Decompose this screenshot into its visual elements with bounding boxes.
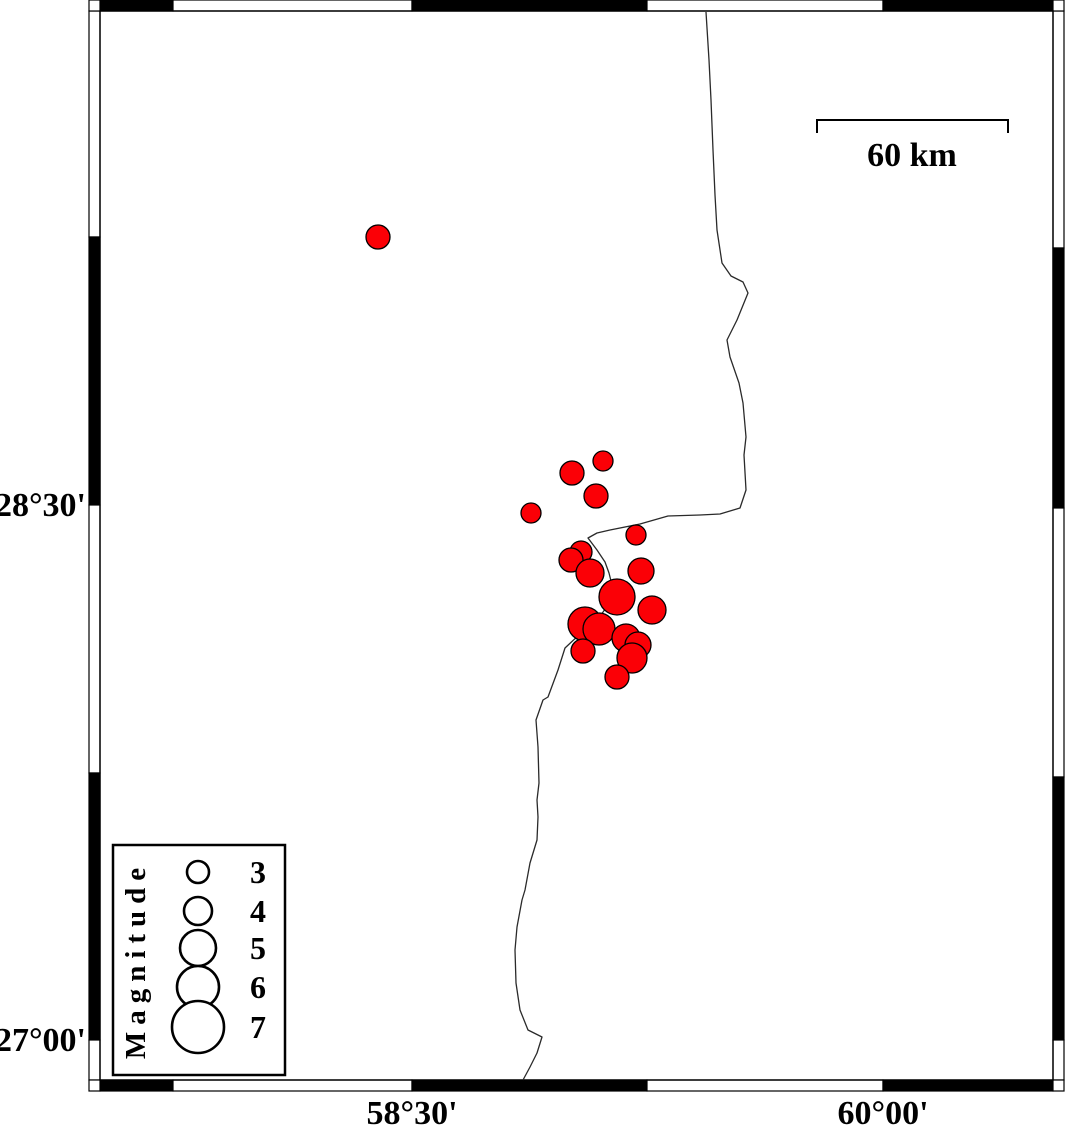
earthquake-marker [628,558,654,584]
frame-top-segment [647,0,883,11]
frame-left-segment [89,11,100,237]
frame-right-segment [1053,508,1064,777]
frame-right-segment [1053,248,1064,508]
legend-circle-mag-5 [180,930,216,966]
frame-left-segment [89,1040,100,1080]
lon-label-58-30: 58°30' [366,1095,457,1128]
frame-corner [89,1080,100,1091]
earthquake-marker [605,665,629,689]
earthquake-marker [626,525,646,545]
earthquake-marker [599,579,635,615]
frame-bottom-segment [100,1080,173,1091]
earthquake-marker [366,225,390,249]
frame-bottom-segment [173,1080,412,1091]
earthquake-marker [576,559,604,587]
earthquake-marker [638,596,666,624]
legend-circle-mag-4 [184,897,212,925]
frame-right-segment [1053,777,1064,1040]
frame-bottom-segment [647,1080,883,1091]
frame-top-segment [412,0,647,11]
frame-left-segment [89,237,100,505]
frame-left-segment [89,773,100,1040]
earthquake-marker [560,461,584,485]
lat-label-27-00: 27°00' [0,1022,86,1059]
frame-bottom-segment [412,1080,647,1091]
legend-label-mag-4: 4 [250,893,266,929]
frame-bottom-segment [883,1080,1053,1091]
legend-label-mag-5: 5 [250,930,266,966]
frame-right-segment [1053,1040,1064,1080]
frame-top-segment [883,0,1053,11]
legend-circle-mag-3 [187,861,209,883]
frame-top-segment [173,0,412,11]
frame-left-segment [89,505,100,773]
legend-label-mag-7: 7 [250,1009,266,1045]
lat-label-28-30: 28°30' [0,487,86,524]
frame-corner [1053,1080,1064,1091]
legend-circle-mag-7 [172,1001,224,1053]
legend-label-mag-6: 6 [250,969,266,1005]
seismicity-map: 60 km 28°30' 27°00' 58°30' 60°00' Magnit… [0,0,1066,1128]
earthquake-marker [521,503,541,523]
lon-label-60-00: 60°00' [837,1095,928,1128]
frame-top-segment [100,0,173,11]
earthquake-marker [584,484,608,508]
earthquake-marker [593,451,613,471]
frame-corner [1053,0,1064,11]
legend-title: Magnitude [120,861,152,1059]
frame-right-segment [1053,11,1064,248]
seismicity-map-page: 60 km 28°30' 27°00' 58°30' 60°00' Magnit… [0,0,1066,1128]
earthquake-marker [571,639,595,663]
frame-corner [89,0,100,11]
scale-bar-label: 60 km [867,137,957,174]
legend-label-mag-3: 3 [250,854,266,890]
